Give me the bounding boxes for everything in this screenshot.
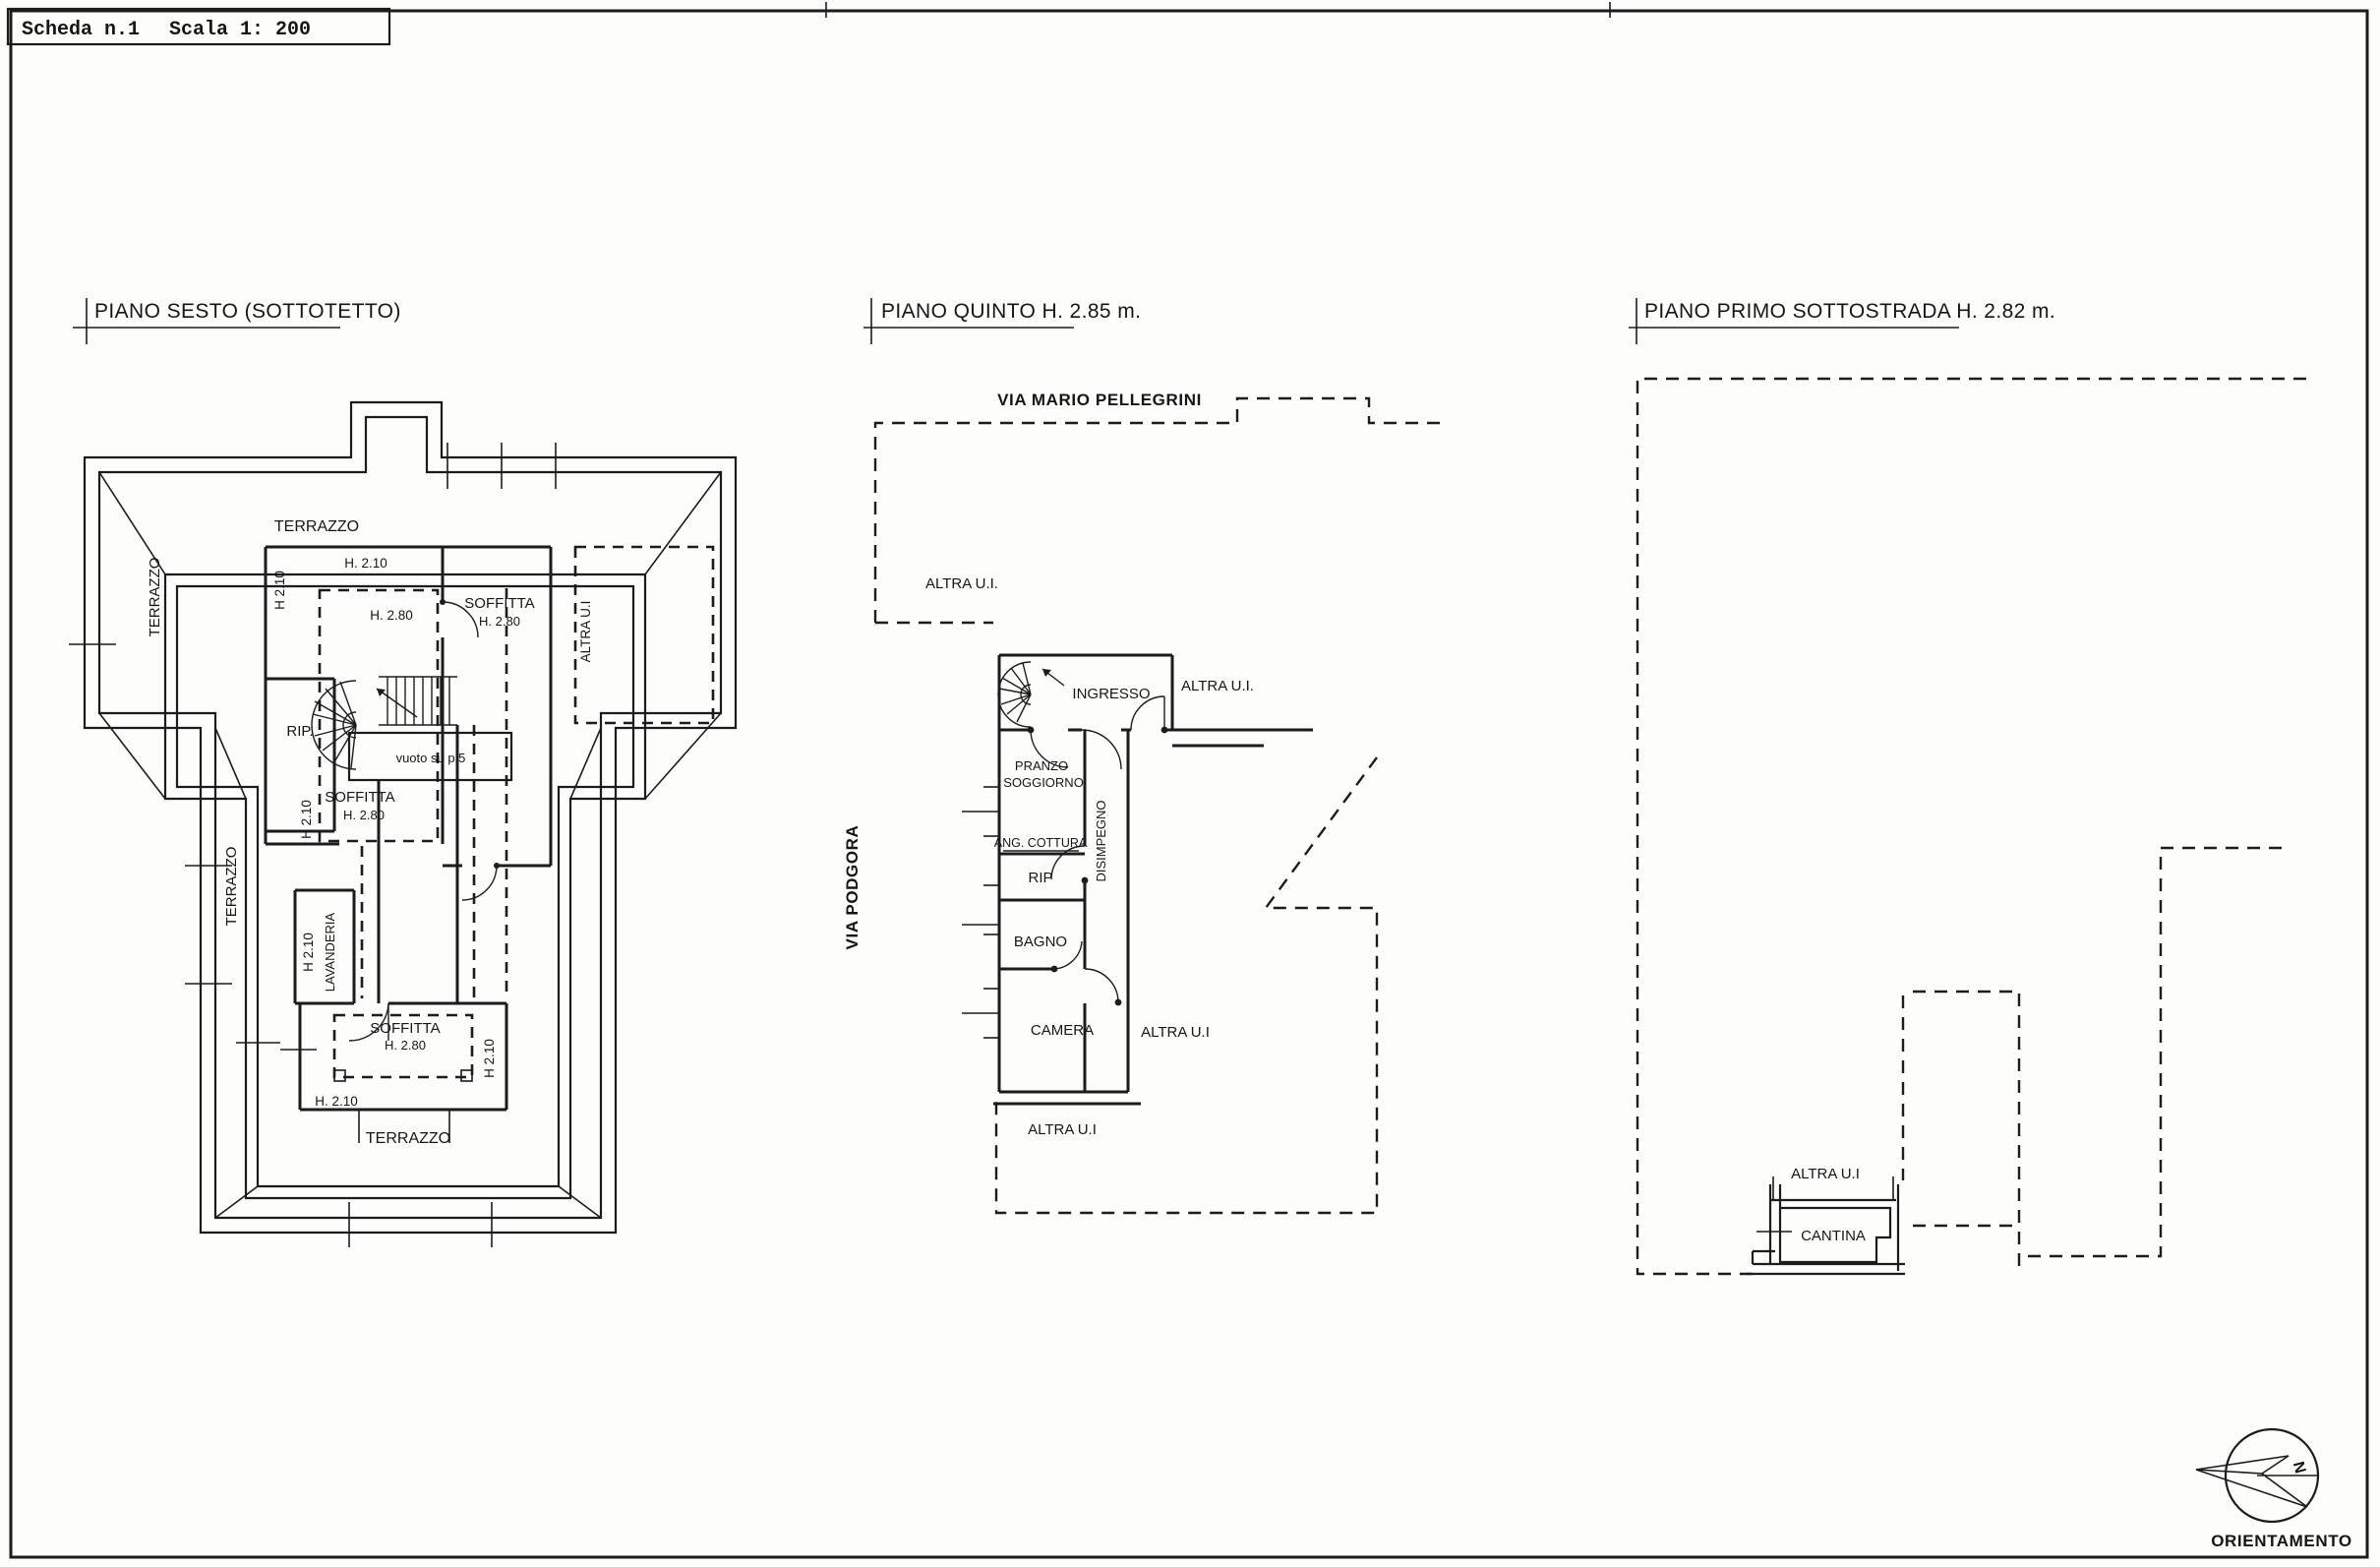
sesto-labels: TERRAZZO H. 2.10 TERRAZZO H 2.10 H. 2.80…	[147, 518, 593, 1147]
height-label: H. 2.80	[479, 614, 520, 629]
room-label: BAGNO	[1014, 934, 1067, 950]
room-label: TERRAZZO	[223, 847, 240, 927]
room-label: SOFFITTA	[370, 1020, 440, 1037]
height-label: H. 2.80	[370, 608, 413, 623]
void-label: vuoto su p.5	[396, 751, 466, 765]
room-label: LAVANDERIA	[323, 912, 337, 992]
room-label: INGRESSO	[1072, 686, 1150, 702]
floorplan-sheet: Scheda n.1 Scala 1: 200 PIANO SESTO (SOT…	[0, 0, 2380, 1567]
unit-label: ALTRA U.I	[1028, 1121, 1097, 1138]
sheet-scale: Scala 1: 200	[169, 19, 311, 41]
height-label: H. 2.80	[385, 1038, 426, 1053]
height-label: H 2.10	[482, 1039, 497, 1078]
cantina-walls	[1746, 1176, 1905, 1274]
room-label: SOGGIORNO	[1003, 775, 1084, 790]
unit-label: ALTRA U.I.	[925, 575, 998, 592]
room-label: RIP.	[286, 723, 313, 740]
plan-sottostrada-title: PIANO PRIMO SOTTOSTRADA H. 2.82 m.	[1644, 300, 2055, 323]
room-label: DISIMPEGNO	[1094, 800, 1108, 881]
room-label: CAMERA	[1031, 1022, 1094, 1039]
title-block: Scheda n.1 Scala 1: 200	[8, 9, 389, 44]
terrace-outer-wall	[85, 402, 736, 1233]
room-label: TERRAZZO	[274, 518, 359, 535]
plan-quinto: VIA MARIO PELLEGRINI VIA PODGORA ALTRA U…	[843, 391, 1446, 1213]
sheet-number: Scheda n.1	[22, 19, 140, 41]
terrace-corner-miters	[99, 472, 721, 1218]
room-label: TERRAZZO	[366, 1130, 450, 1147]
orientation-compass: N ORIENTAMENTO	[2196, 1429, 2352, 1550]
plan-quinto-title: PIANO QUINTO H. 2.85 m.	[881, 300, 1141, 323]
terrace-outer-wall-inner	[99, 417, 721, 1218]
height-label: H. 2.80	[343, 808, 385, 822]
street-label: VIA MARIO PELLEGRINI	[997, 391, 1202, 409]
height-label: H. 2.10	[315, 1094, 358, 1109]
height-label: H. 2.10	[344, 556, 387, 571]
sheet-drawing: Scheda n.1 Scala 1: 200 PIANO SESTO (SOT…	[0, 0, 2380, 1567]
room-label: SOFFITTA	[464, 595, 534, 612]
height-label: H 2.10	[272, 571, 287, 610]
north-letter: N	[2290, 1460, 2308, 1476]
room-label: CANTINA	[1801, 1228, 1866, 1244]
unit-label: ALTRA U.I	[1791, 1166, 1860, 1182]
unit-label: ALTRA U.I	[1141, 1024, 1210, 1041]
room-label: SOFFITTA	[325, 789, 394, 806]
street-label: VIA PODGORA	[843, 825, 862, 950]
spiral-staircase-quinto	[998, 662, 1064, 727]
room-label: PRANZO	[1015, 758, 1068, 773]
plan-sesto-title: PIANO SESTO (SOTTOTETTO)	[94, 300, 401, 323]
room-label: ANG. COTTURA	[994, 836, 1088, 850]
compass-label: ORIENTAMENTO	[2211, 1532, 2352, 1550]
room-label: TERRAZZO	[147, 558, 163, 637]
unit-label: ALTRA U.I.	[1181, 678, 1254, 694]
quinto-window-ticks	[962, 787, 999, 1038]
room-label: RIP	[1028, 870, 1052, 886]
quinto-block-outline	[875, 398, 1446, 1213]
sottostrada-labels: ALTRA U.I CANTINA	[1791, 1166, 1866, 1244]
sottostrada-outline	[1637, 379, 2309, 1274]
room-label: ALTRA U.I	[578, 601, 593, 663]
straight-stairs	[377, 677, 457, 725]
plan-titles: PIANO SESTO (SOTTOTETTO) PIANO QUINTO H.…	[73, 298, 2055, 344]
plan-sottostrada: ALTRA U.I CANTINA	[1637, 379, 2309, 1274]
height-label: H 2.10	[301, 933, 316, 972]
plan-sesto: TERRAZZO H. 2.10 TERRAZZO H 2.10 H. 2.80…	[69, 402, 736, 1247]
height-label: H 2.10	[299, 800, 314, 839]
quinto-labels: VIA MARIO PELLEGRINI VIA PODGORA ALTRA U…	[843, 391, 1254, 1138]
